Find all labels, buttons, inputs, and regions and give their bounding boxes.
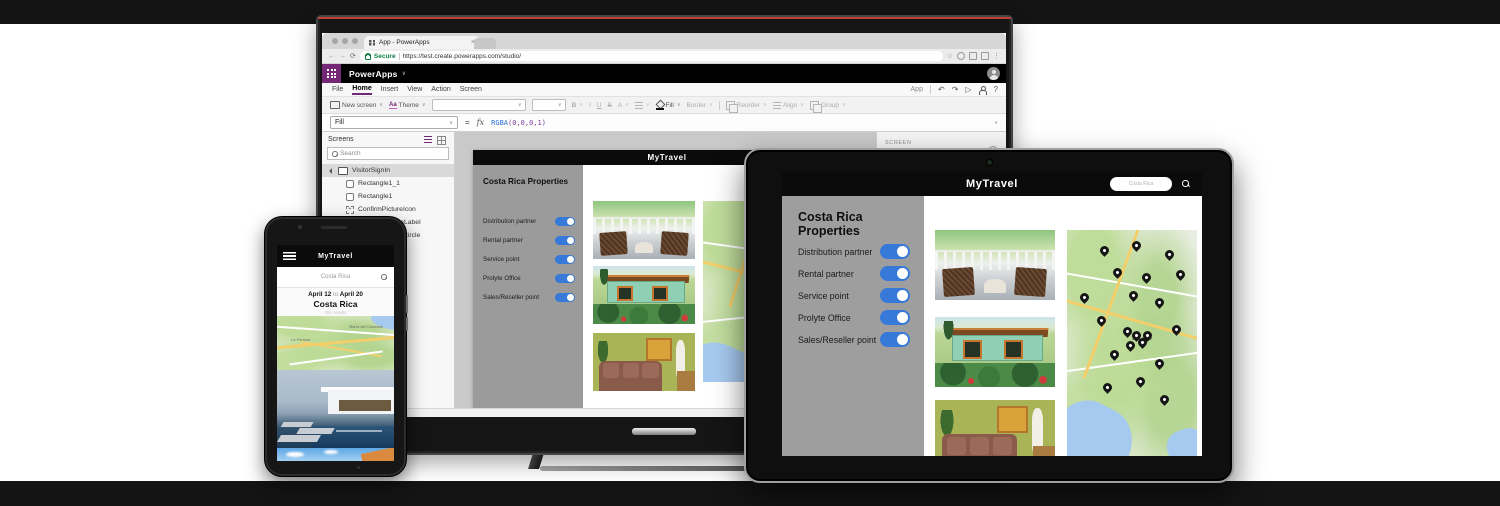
browser-address-bar: ← → ⟳ Secure https://test.create.powerap…	[322, 49, 1006, 64]
url-field[interactable]: Secure https://test.create.powerapps.com…	[360, 51, 943, 61]
photo-patio[interactable]	[593, 201, 695, 259]
font-family-dropdown[interactable]: ∨	[432, 99, 526, 111]
toggle-prolyte-office[interactable]	[880, 310, 910, 325]
grid-view-icon[interactable]	[437, 136, 446, 145]
chevron-down-icon: ∨	[449, 120, 453, 126]
photo-living-room[interactable]	[593, 333, 695, 391]
chevron-down-icon: ∨	[800, 102, 804, 108]
app-search-box[interactable]: Costa Rica	[277, 267, 394, 288]
new-screen-button[interactable]: New screen ∨	[330, 101, 383, 109]
powerapps-title: PowerApps	[349, 69, 398, 79]
tab-title: App - PowerApps	[379, 39, 467, 46]
app-mode-label: App	[911, 86, 923, 93]
tablet-device: MyTravel Costa Rica Costa Rica Propertie…	[744, 148, 1234, 483]
app-header: MyTravel Costa Rica	[782, 172, 1202, 196]
extension-icon[interactable]	[981, 52, 989, 60]
toggle-service-point[interactable]	[555, 255, 575, 264]
toggle-distribution-partner[interactable]	[880, 244, 910, 259]
date-to: April 20	[340, 291, 363, 298]
location-title: Costa Rica	[277, 299, 394, 309]
divider	[719, 101, 720, 110]
rectangle-icon	[346, 193, 354, 201]
search-icon[interactable]	[1182, 180, 1189, 187]
photo-beach-deck[interactable]	[277, 448, 394, 461]
strikethrough-button[interactable]: S	[607, 102, 611, 109]
redo-icon[interactable]: ↷	[952, 85, 959, 94]
theme-icon: Aa	[389, 102, 397, 109]
property-panel-label: SCREEN	[885, 140, 998, 146]
menu-bar: File Home Insert View Action Screen App …	[322, 83, 1006, 97]
tree-item-control[interactable]: Rectangle1	[322, 190, 454, 203]
photo-patio[interactable]	[935, 230, 1055, 300]
preview-play-icon[interactable]: ▷	[965, 85, 971, 94]
chevron-down-icon: ∨	[579, 102, 583, 108]
user-avatar[interactable]	[987, 67, 1000, 80]
align-button[interactable]: Align ∨	[773, 102, 804, 109]
bottom-letterbox-band	[0, 481, 1500, 506]
align-icon	[773, 102, 781, 109]
reload-icon[interactable]: ⟳	[350, 52, 356, 60]
chevron-down-icon[interactable]: ∨	[994, 120, 998, 126]
share-person-icon[interactable]	[979, 85, 987, 94]
fill-icon	[656, 101, 664, 110]
app-filter-sidebar: Costa Rica Properties Distribution partn…	[782, 196, 924, 456]
tablet-screen: MyTravel Costa Rica Costa Rica Propertie…	[782, 172, 1202, 456]
window-control-icon[interactable]	[332, 38, 338, 44]
monitor-top-edge	[318, 17, 1011, 19]
app-body: Costa Rica Properties Distribution partn…	[782, 196, 1202, 456]
results-count: 291 results	[277, 310, 394, 315]
property-dropdown[interactable]: Fill ∨	[330, 116, 458, 129]
monitor-bezel-slot	[632, 428, 696, 435]
filter-row: Sales/Reseller point	[798, 332, 910, 347]
url-separator	[399, 53, 400, 60]
screens-search-input[interactable]: Search	[327, 147, 449, 160]
filter-row: Prolyte Office	[483, 274, 575, 283]
menu-home[interactable]: Home	[352, 85, 371, 95]
tree-item-screen[interactable]: VisitorSignIn	[322, 164, 454, 177]
text-align-icon	[635, 102, 643, 109]
phone-power-button	[406, 295, 408, 313]
filter-row: Service point	[798, 288, 910, 303]
browser-tab-bar: App - PowerApps ×	[322, 33, 1006, 49]
sidebar-title: Costa Rica Properties	[798, 210, 924, 238]
chevron-down-icon: ∨	[625, 102, 629, 108]
browser-menu-icon[interactable]: ⋮	[993, 52, 1000, 60]
formula-input[interactable]: RGBA(0,0,0,1)	[491, 119, 546, 127]
align-text-button[interactable]: ∨	[635, 102, 650, 109]
toggle-service-point[interactable]	[880, 288, 910, 303]
bold-button[interactable]: B ∨	[572, 102, 583, 109]
group-button[interactable]: Group ∨	[810, 101, 846, 110]
phone-screen: MyTravel Costa Rica April 12 to April 20…	[277, 245, 394, 461]
powerapps-favicon-icon	[369, 40, 375, 46]
date-connector: to	[333, 291, 338, 298]
icon-control-icon: +	[346, 206, 354, 214]
map-tablet[interactable]: San José	[1067, 230, 1197, 456]
filter-row: Rental partner	[483, 236, 575, 245]
toggle-rental-partner[interactable]	[555, 236, 575, 245]
phone-speaker	[321, 226, 347, 229]
app-title: MyTravel	[966, 178, 1018, 190]
date-from: April 12	[308, 291, 331, 298]
filter-row: Distribution partner	[483, 217, 575, 226]
secure-label: Secure	[374, 53, 396, 60]
equals-sign: =	[465, 118, 470, 127]
chevron-down-icon: ∨	[842, 102, 846, 108]
app-search-box[interactable]: Costa Rica	[1110, 177, 1172, 191]
font-size-dropdown[interactable]: ∨	[532, 99, 566, 111]
chevron-down-icon: ∨	[518, 102, 522, 108]
reorder-button[interactable]: Reorder ∨	[726, 101, 767, 110]
filter-row: Prolyte Office	[798, 310, 910, 325]
chevron-down-icon: ∨	[646, 102, 650, 108]
filter-row: Rental partner	[798, 266, 910, 281]
new-tab-button[interactable]	[474, 38, 496, 49]
formula-bar: Fill ∨ = fx RGBA(0,0,0,1) ∨	[322, 114, 1006, 132]
toggle-distribution-partner[interactable]	[555, 217, 575, 226]
search-icon	[332, 151, 337, 156]
screen-icon	[330, 101, 340, 109]
chevron-down-icon: ∨	[709, 102, 713, 108]
menu-view[interactable]: View	[407, 86, 422, 93]
help-icon[interactable]: ?	[994, 85, 998, 94]
toggle-prolyte-office[interactable]	[555, 274, 575, 283]
divider	[930, 85, 931, 94]
map-town-label: La Fortuna	[291, 337, 310, 342]
toggle-sales-reseller-point[interactable]	[555, 293, 575, 302]
forward-icon[interactable]: →	[339, 53, 346, 60]
chevron-down-icon: ∨	[763, 102, 767, 108]
window-control-icon[interactable]	[342, 38, 348, 44]
underline-button[interactable]: U	[597, 102, 602, 109]
chevron-down-icon: ∨	[379, 102, 383, 108]
photo-green-house[interactable]	[935, 317, 1055, 387]
bookmark-star-icon[interactable]: ☆	[947, 52, 953, 60]
font-color-button[interactable]: A ∨	[618, 102, 629, 109]
hero-composite: App - PowerApps × ← → ⟳ Secure https://t…	[0, 0, 1500, 506]
phone-camera	[298, 225, 302, 229]
rectangle-icon	[346, 180, 354, 188]
filter-row: Sales/Reseller point	[483, 293, 575, 302]
filter-row: Distribution partner	[798, 244, 910, 259]
fx-icon: fx	[477, 118, 484, 127]
trip-summary: April 12 to April 20 Costa Rica 291 resu…	[277, 288, 394, 316]
chevron-down-icon: ∨	[558, 102, 562, 108]
tree-item-control[interactable]: Rectangle1_1	[322, 177, 454, 190]
phone-volume-button	[406, 317, 408, 331]
map-town-label: Barra del Colorado	[350, 324, 384, 329]
browser-tab[interactable]: App - PowerApps ×	[364, 36, 480, 49]
toggle-sales-reseller-point[interactable]	[880, 332, 910, 347]
fill-button[interactable]: Fill ∨	[656, 101, 681, 110]
toggle-rental-partner[interactable]	[880, 266, 910, 281]
group-icon	[810, 101, 819, 110]
app-filter-sidebar: Costa Rica Properties Distribution partn…	[473, 165, 583, 408]
app-launcher-icon[interactable]	[322, 64, 341, 83]
menu-insert[interactable]: Insert	[381, 86, 399, 93]
app-header: MyTravel	[277, 245, 394, 267]
phone-home-dot	[357, 466, 360, 469]
filter-row: Service point	[483, 255, 575, 264]
sort-list-icon[interactable]	[424, 136, 432, 143]
url-text: https://test.create.powerapps.com/studio…	[403, 53, 522, 60]
app-title: MyTravel	[647, 153, 686, 162]
app-title: MyTravel	[318, 253, 353, 260]
photo-villa-pool[interactable]	[277, 370, 394, 448]
back-icon[interactable]: ←	[328, 53, 335, 60]
menu-screen[interactable]: Screen	[460, 86, 482, 93]
theme-button[interactable]: Aa Theme ∨	[389, 102, 426, 109]
reorder-icon	[726, 101, 735, 110]
window-control-icon[interactable]	[352, 38, 358, 44]
expander-icon[interactable]	[329, 168, 335, 174]
chevron-down-icon: ∨	[677, 102, 681, 108]
photo-living-room[interactable]	[935, 400, 1055, 456]
lock-icon	[365, 54, 371, 60]
menu-file[interactable]: File	[332, 86, 343, 93]
photo-green-house[interactable]	[593, 266, 695, 324]
sidebar-title: Costa Rica Properties	[483, 177, 568, 186]
border-button[interactable]: Border ∨	[686, 102, 712, 109]
italic-button[interactable]: I	[589, 102, 591, 109]
phone-device: MyTravel Costa Rica April 12 to April 20…	[264, 216, 407, 477]
screen-icon	[338, 167, 348, 175]
extension-icon[interactable]	[957, 52, 965, 60]
tree-item-control[interactable]: + ConfirmPictureIcon	[322, 203, 454, 216]
chevron-down-icon: ∨	[422, 102, 426, 108]
hamburger-menu-icon[interactable]	[283, 252, 296, 260]
powerapps-header: PowerApps ∨	[322, 64, 1006, 83]
chevron-down-icon[interactable]: ∨	[402, 70, 406, 77]
tablet-camera	[986, 159, 993, 166]
menu-action[interactable]: Action	[431, 86, 450, 93]
search-icon[interactable]	[381, 274, 386, 279]
format-toolbar: New screen ∨ Aa Theme ∨ ∨ ∨ B ∨	[322, 97, 1006, 114]
undo-icon[interactable]: ↶	[938, 85, 945, 94]
extension-icon[interactable]	[969, 52, 977, 60]
map-phone[interactable]: La Fortuna Barra del Colorado	[277, 316, 394, 370]
screens-panel-title: Screens	[328, 136, 354, 143]
